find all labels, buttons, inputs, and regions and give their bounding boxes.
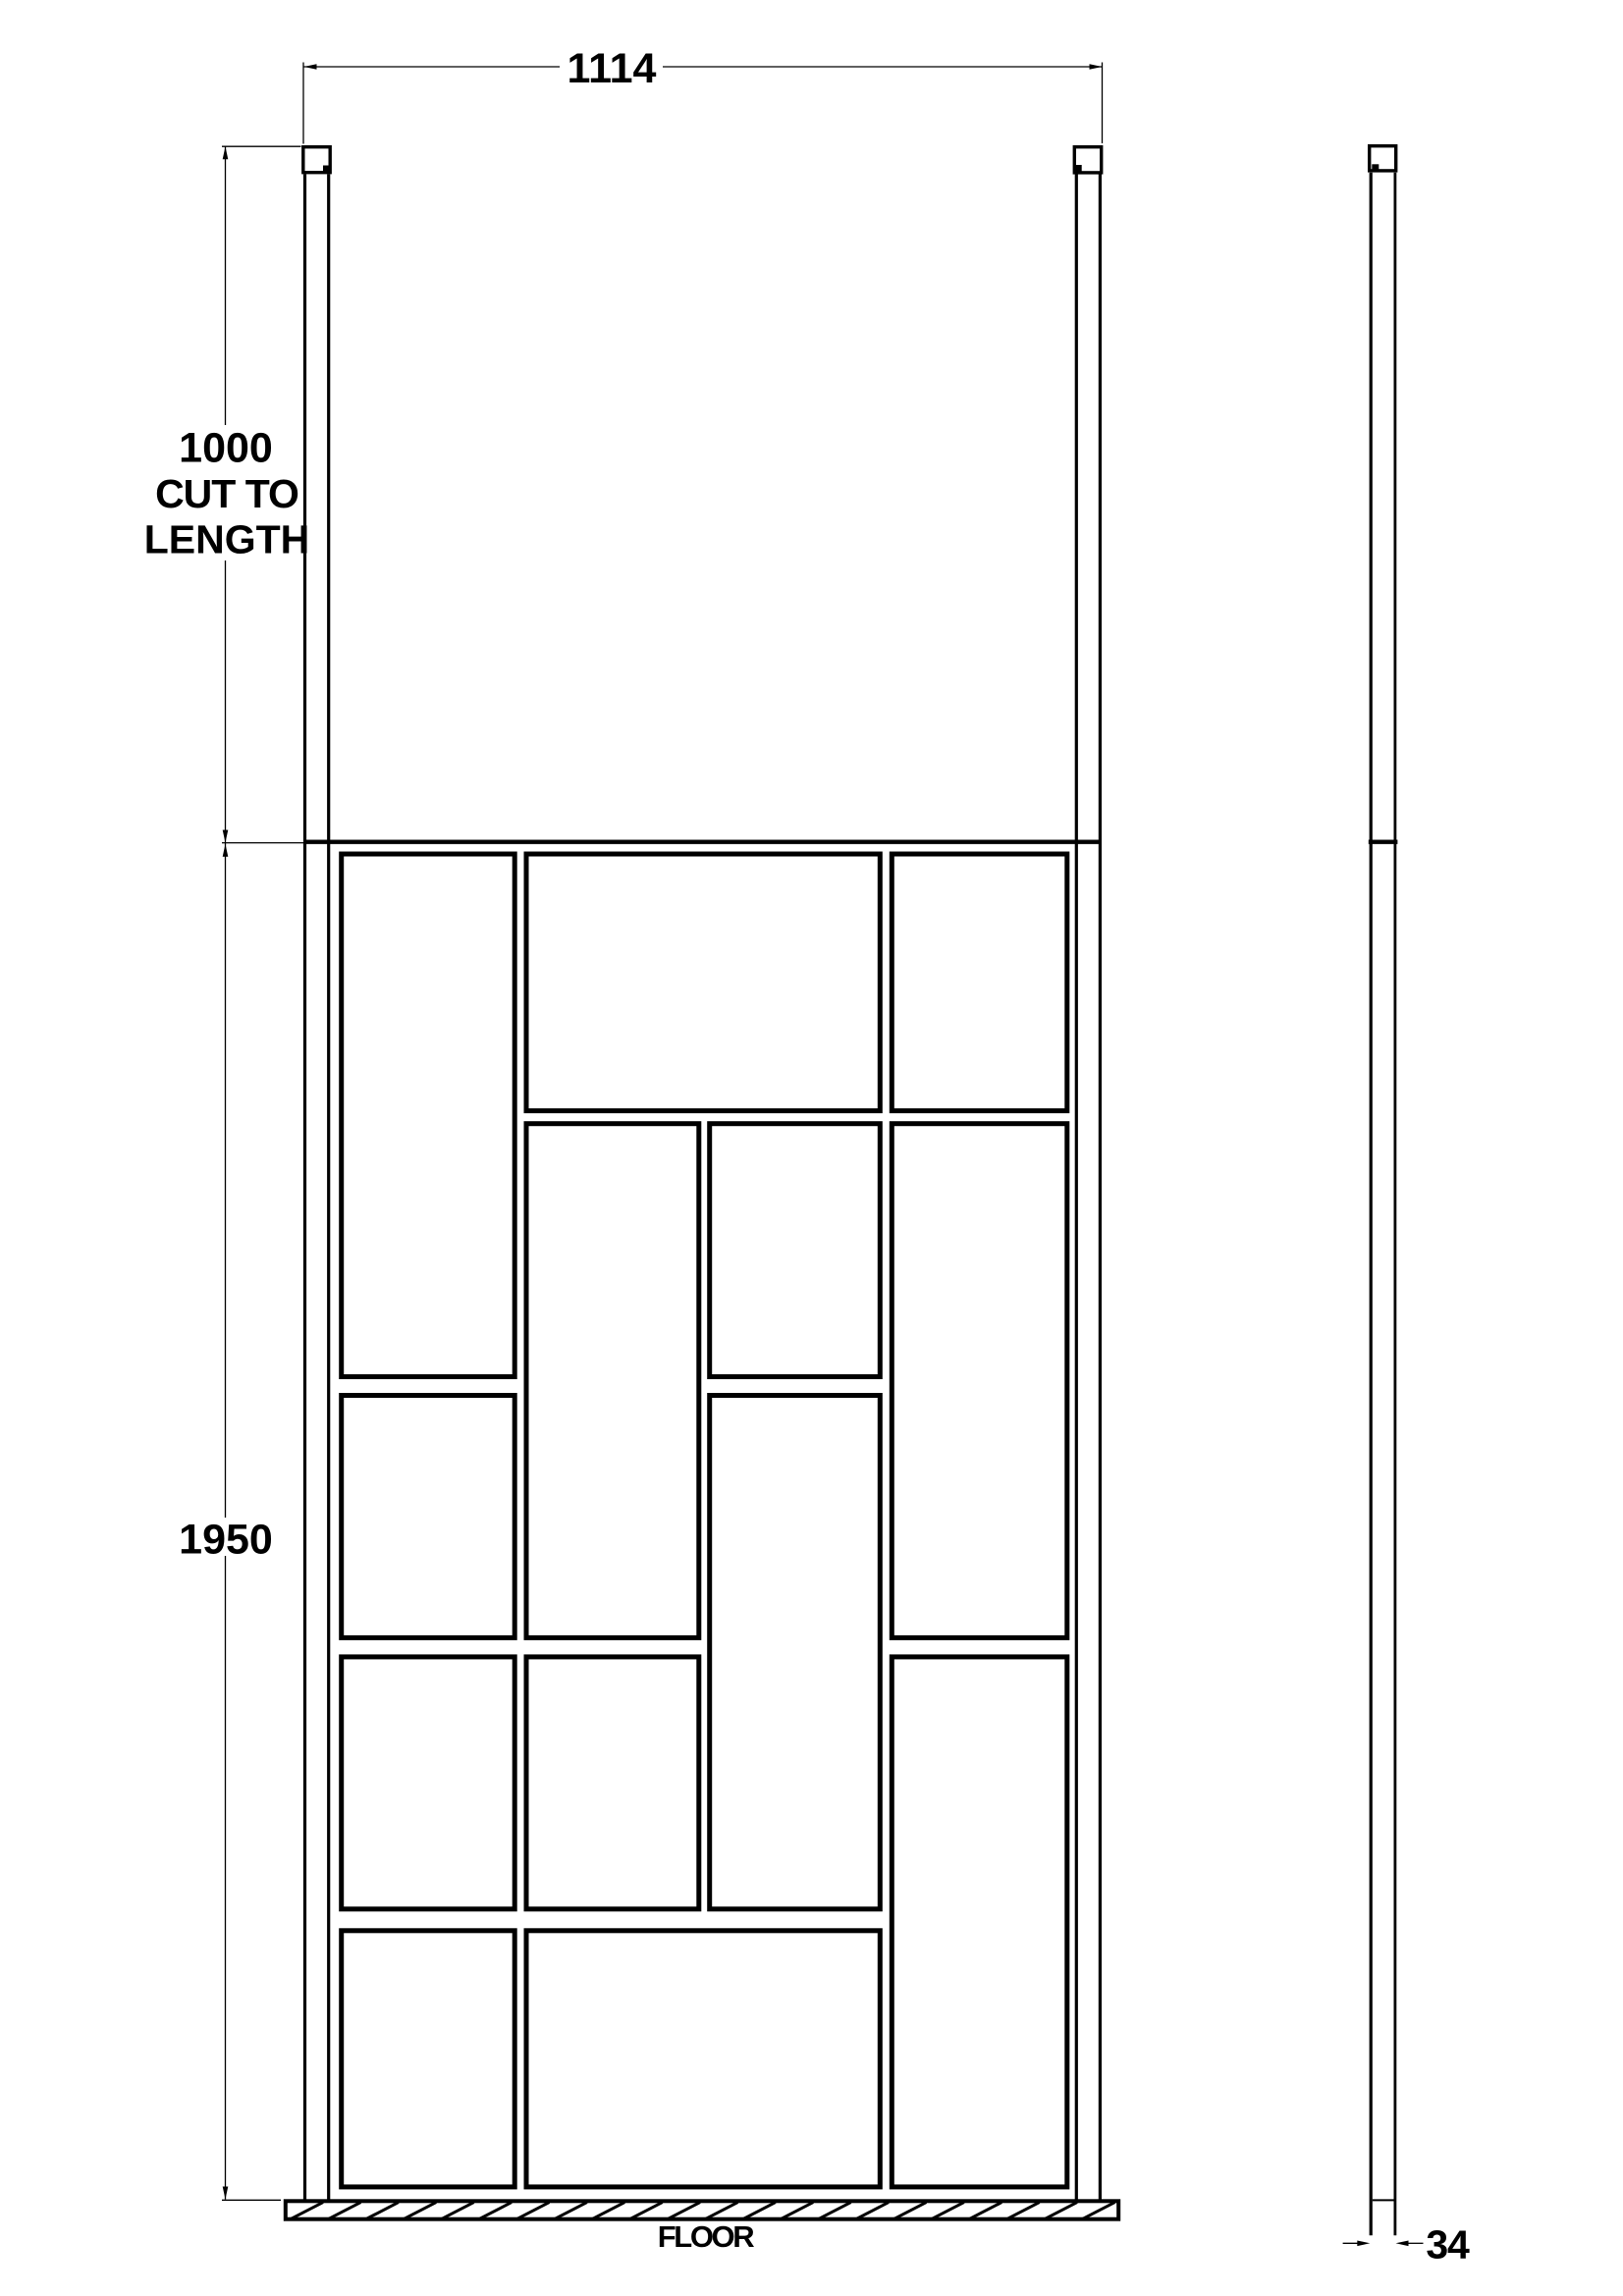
svg-text:CUT TO: CUT TO: [155, 471, 298, 516]
svg-text:34: 34: [1426, 2222, 1470, 2268]
svg-text:1950: 1950: [179, 1517, 273, 1564]
svg-text:FLOOR: FLOOR: [658, 2219, 754, 2254]
svg-text:1000: 1000: [179, 425, 273, 472]
svg-text:LENGTH: LENGTH: [144, 516, 310, 561]
svg-text:1114: 1114: [568, 45, 657, 92]
